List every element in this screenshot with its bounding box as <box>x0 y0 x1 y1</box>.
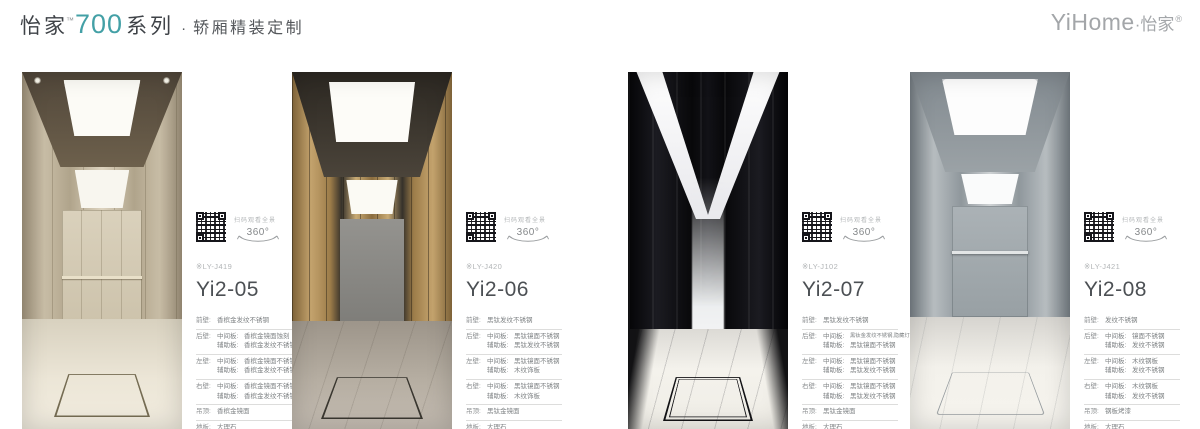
cabin-handrail <box>952 251 1029 254</box>
spec-label: 吊顶: <box>802 407 823 417</box>
spec-group: 左壁:中间板:黑钛镜面不锈钢辅助板:木纹饰板 <box>466 355 562 380</box>
spec-group: 地板:大理石 <box>802 421 898 429</box>
spec-sub-label: 辅助板: <box>1105 366 1132 376</box>
spec-value: 大理石 <box>823 423 843 429</box>
spec-group: 吊顶:黑钛金镜面 <box>466 405 562 421</box>
spec-value: 大理石 <box>1105 423 1125 429</box>
spec-list: 前壁:黑钛发纹不锈钢后壁:中间板:黑钛金发纹不锈钢,隐藏灯带辅助板:黑钛镜面不锈… <box>802 314 898 429</box>
spec-label: 前壁: <box>196 316 217 326</box>
spec-group: 后壁:中间板:镜面不锈钢辅助板:发纹不锈钢 <box>1084 330 1180 355</box>
spec-value: 黑钛镜面不锈钢 <box>850 341 896 351</box>
scan-block: 扫码观看全景 360° <box>504 212 552 245</box>
spec-value: 黑钛发纹不锈钢 <box>514 341 560 351</box>
spec-label: 地板: <box>802 423 823 429</box>
spec-row: 地板:大理石 <box>802 423 898 429</box>
catalog-page: 怡家™700系列 · 轿厢精装定制 YiHome ·怡家 ® <box>0 0 1200 429</box>
product-code: ※LY-J419 <box>196 262 292 271</box>
spec-value: 黑钛发纹不锈钢 <box>850 366 896 376</box>
spec-row: 后壁:中间板:镜面不锈钢 <box>1084 332 1180 342</box>
qr-finder-icon <box>802 234 810 242</box>
spec-label: 地板: <box>1084 423 1105 429</box>
qr-code-icon <box>802 212 832 242</box>
spec-row: 右壁:中间板:香槟金镜面不锈钢 <box>196 382 292 392</box>
spec-row: 右壁:中间板:黑钛镜面不锈钢 <box>802 382 898 392</box>
spec-value: 发纹不锈钢 <box>1132 366 1165 376</box>
spec-label <box>1084 366 1105 376</box>
spec-row: 辅助板:黑钛发纹不锈钢 <box>802 392 898 402</box>
spec-row: 左壁:中间板:木纹钢板 <box>1084 357 1180 367</box>
spec-row: 吊顶:黑钛金镜面 <box>802 407 898 417</box>
spec-group: 地板:大理石 <box>1084 421 1180 429</box>
spec-row: 前壁:发纹不锈钢 <box>1084 316 1180 326</box>
spec-sub-label: 辅助板: <box>487 341 514 351</box>
cabin-floor <box>22 319 182 429</box>
spec-value: 香槟金发纹不锈钢 <box>217 316 269 326</box>
product-code: ※LY-J102 <box>802 262 898 271</box>
product-model: Yi2-06 <box>466 278 562 302</box>
spec-row: 左壁:中间板:香槟金镜面不锈钢 <box>196 357 292 367</box>
spec-value: 黑钛发纹不锈钢 <box>823 316 869 326</box>
spec-sub-label: 中间板: <box>487 357 514 367</box>
spec-label <box>802 366 823 376</box>
page-title: 怡家™700系列 · 轿厢精装定制 <box>20 9 304 40</box>
qr-finder-icon <box>218 212 226 220</box>
rotate-360-badge: 360° <box>1122 227 1170 245</box>
spec-sub-label: 中间板: <box>217 357 244 367</box>
spec-group: 地板:大理石 <box>196 421 292 429</box>
spec-sub-label: 中间板: <box>823 332 850 342</box>
spec-sub-label: 辅助板: <box>823 341 850 351</box>
product-model: Yi2-05 <box>196 278 292 302</box>
spec-row: 吊顶:黑钛金镜面 <box>466 407 562 417</box>
ceiling-light-panel-rear <box>346 180 397 214</box>
spec-value: 发纹不锈钢 <box>1105 316 1138 326</box>
spec-sub-label: 辅助板: <box>823 392 850 402</box>
elevator-cabin-photo <box>628 72 788 429</box>
spec-group: 吊顶:香槟金镜面 <box>196 405 292 421</box>
spec-row: 前壁:黑钛发纹不锈钢 <box>802 316 898 326</box>
spec-label <box>802 392 823 402</box>
spec-sub-label: 中间板: <box>217 332 244 342</box>
ceiling-light-panel <box>327 82 417 142</box>
spec-sub-label: 中间板: <box>1105 332 1132 342</box>
registered-mark: ® <box>1175 14 1182 24</box>
spec-row: 地板:大理石 <box>196 423 292 429</box>
spec-value: 黑钛镜面不锈钢 <box>514 332 560 342</box>
qr-finder-icon <box>466 234 474 242</box>
spec-row: 地板:大理石 <box>1084 423 1180 429</box>
spec-row: 右壁:中间板:木纹钢板 <box>1084 382 1180 392</box>
spec-value: 镜面不锈钢 <box>1132 332 1165 342</box>
spec-group: 左壁:中间板:木纹钢板辅助板:发纹不锈钢 <box>1084 355 1180 380</box>
spec-label: 后壁: <box>1084 332 1105 342</box>
product-info-panel: 扫码观看全景 360° ※LY-J421 Yi2-08 前壁:发纹不锈钢后壁:中… <box>1084 72 1180 429</box>
series-name: 怡家 <box>20 10 68 40</box>
ceiling-light-panel-rear <box>961 174 1019 204</box>
spec-list: 前壁:香槟金发纹不锈钢后壁:中间板:香槟金镜面蚀刻辅助板:香槟金发纹不锈钢左壁:… <box>196 314 292 429</box>
trademark-mark: ™ <box>66 16 74 25</box>
spec-value: 黑钛发纹不锈钢 <box>850 392 896 402</box>
spec-group: 左壁:中间板:黑钛镜面不锈钢辅助板:黑钛发纹不锈钢 <box>802 355 898 380</box>
page-header: 怡家™700系列 · 轿厢精装定制 YiHome ·怡家 ® <box>0 0 1200 62</box>
spec-value: 发纹不锈钢 <box>1132 341 1165 351</box>
qr-finder-icon <box>488 212 496 220</box>
elevator-cabin-photo <box>910 72 1070 429</box>
brand-logo: YiHome ·怡家 ® <box>1051 9 1182 36</box>
scan-block: 扫码观看全景 360° <box>1122 212 1170 245</box>
spec-value: 香槟金发纹不锈钢 <box>244 341 296 351</box>
spec-label: 后壁: <box>802 332 823 342</box>
floor-inlay-inner-frame <box>669 379 747 417</box>
product-info-panel: 扫码观看全景 360° ※LY-J419 Yi2-05 前壁:香槟金发纹不锈钢后… <box>196 72 292 429</box>
spec-sub-label: 辅助板: <box>1105 392 1132 402</box>
spec-group: 后壁:中间板:黑钛金发纹不锈钢,隐藏灯带辅助板:黑钛镜面不锈钢 <box>802 330 898 355</box>
spec-group: 吊顶:黑钛金镜面 <box>802 405 898 421</box>
spec-value: 木纹钢板 <box>1132 382 1158 392</box>
spec-label <box>196 366 217 376</box>
spec-value: 大理石 <box>217 423 237 429</box>
product-code: ※LY-J420 <box>466 262 562 271</box>
spec-sub-label: 辅助板: <box>487 366 514 376</box>
spec-label <box>466 366 487 376</box>
spec-label: 右壁: <box>1084 382 1105 392</box>
rotate-360-label: 360° <box>853 227 876 238</box>
spec-group: 前壁:黑钛发纹不锈钢 <box>802 314 898 330</box>
spec-row: 辅助板:香槟金发纹不锈钢 <box>196 366 292 376</box>
spec-label: 地板: <box>196 423 217 429</box>
spec-value: 黑钛镜面不锈钢 <box>514 357 560 367</box>
spec-value: 香槟金镜面蚀刻 <box>244 332 290 342</box>
products-row: 扫码观看全景 360° ※LY-J419 Yi2-05 前壁:香槟金发纹不锈钢后… <box>22 72 1180 429</box>
spec-label <box>196 392 217 402</box>
product-section: 扫码观看全景 360° ※LY-J420 Yi2-06 前壁:黑钛发纹不锈钢后壁… <box>292 72 562 429</box>
scan-block: 扫码观看全景 360° <box>840 212 888 245</box>
spec-sub-label: 中间板: <box>217 382 244 392</box>
spec-label: 吊顶: <box>1084 407 1105 417</box>
spec-sub-label: 辅助板: <box>217 341 244 351</box>
spec-value: 黑钛发纹不锈钢 <box>487 316 533 326</box>
rotate-360-badge: 360° <box>504 227 552 245</box>
spec-sub-label: 辅助板: <box>217 366 244 376</box>
floor-inlay-frame <box>936 372 1045 415</box>
spec-row: 吊顶:钢板烤漆 <box>1084 407 1180 417</box>
spec-label: 后壁: <box>196 332 217 342</box>
qr-finder-icon <box>466 212 474 220</box>
brand-logo-en: YiHome <box>1051 9 1135 36</box>
spec-sub-label: 中间板: <box>1105 357 1132 367</box>
spec-row: 辅助板:发纹不锈钢 <box>1084 392 1180 402</box>
qr-finder-icon <box>824 212 832 220</box>
spec-label <box>466 392 487 402</box>
spec-group: 后壁:中间板:黑钛镜面不锈钢辅助板:黑钛发纹不锈钢 <box>466 330 562 355</box>
spec-label: 右壁: <box>466 382 487 392</box>
qr-code-icon <box>196 212 226 242</box>
cabin-handrail <box>692 177 724 339</box>
spec-row: 辅助板:香槟金发纹不锈钢 <box>196 341 292 351</box>
spec-group: 右壁:中间板:香槟金镜面不锈钢辅助板:香槟金发纹不锈钢 <box>196 380 292 405</box>
rotate-360-label: 360° <box>1135 227 1158 238</box>
spec-sub-label: 中间板: <box>487 382 514 392</box>
spec-group: 左壁:中间板:香槟金镜面不锈钢辅助板:香槟金发纹不锈钢 <box>196 355 292 380</box>
spec-label: 左壁: <box>802 357 823 367</box>
spec-row: 后壁:中间板:黑钛金发纹不锈钢,隐藏灯带 <box>802 332 898 342</box>
spec-row: 辅助板:木纹饰板 <box>466 392 562 402</box>
qr-finder-icon <box>1084 212 1092 220</box>
qr-finder-icon <box>1106 212 1114 220</box>
spec-value: 黑钛镜面不锈钢 <box>850 357 896 367</box>
spec-group: 吊顶:钢板烤漆 <box>1084 405 1180 421</box>
spec-value: 黑钛镜面不锈钢 <box>850 382 896 392</box>
qr-row: 扫码观看全景 360° <box>1084 212 1180 245</box>
spec-row: 地板:大理石 <box>466 423 562 429</box>
spec-label: 后壁: <box>466 332 487 342</box>
spec-group: 后壁:中间板:香槟金镜面蚀刻辅助板:香槟金发纹不锈钢 <box>196 330 292 355</box>
qr-code-icon <box>466 212 496 242</box>
spec-value: 香槟金发纹不锈钢 <box>244 366 296 376</box>
spec-value: 黑钛金镜面 <box>487 407 520 417</box>
spec-row: 左壁:中间板:黑钛镜面不锈钢 <box>802 357 898 367</box>
spec-row: 辅助板:黑钛镜面不锈钢 <box>802 341 898 351</box>
spec-sub-label: 中间板: <box>487 332 514 342</box>
spec-value: 香槟金镜面不锈钢 <box>244 382 296 392</box>
qr-finder-icon <box>196 234 204 242</box>
page-subtitle: 轿厢精装定制 <box>193 14 304 38</box>
spec-value: 发纹不锈钢 <box>1132 392 1165 402</box>
spec-value: 黑钛镜面不锈钢 <box>514 382 560 392</box>
spec-list: 前壁:发纹不锈钢后壁:中间板:镜面不锈钢辅助板:发纹不锈钢左壁:中间板:木纹钢板… <box>1084 314 1180 429</box>
spec-row: 辅助板:木纹饰板 <box>466 366 562 376</box>
series-number: 700 <box>75 9 123 40</box>
spec-group: 地板:大理石 <box>466 421 562 429</box>
spec-label: 前壁: <box>1084 316 1105 326</box>
spec-group: 右壁:中间板:黑钛镜面不锈钢辅助板:木纹饰板 <box>466 380 562 405</box>
spec-value: 钢板烤漆 <box>1105 407 1131 417</box>
spec-label: 前壁: <box>802 316 823 326</box>
cabin-back-wall <box>62 210 142 321</box>
spec-sub-label: 辅助板: <box>1105 341 1132 351</box>
scan-block: 扫码观看全景 360° <box>234 212 282 245</box>
product-section: 扫码观看全景 360° ※LY-J421 Yi2-08 前壁:发纹不锈钢后壁:中… <box>910 72 1180 429</box>
product-info-panel: 扫码观看全景 360° ※LY-J102 Yi2-07 前壁:黑钛发纹不锈钢后壁… <box>802 72 898 429</box>
rotate-360-badge: 360° <box>234 227 282 245</box>
spec-label: 前壁: <box>466 316 487 326</box>
product-section: 扫码观看全景 360° ※LY-J102 Yi2-07 前壁:黑钛发纹不锈钢后壁… <box>628 72 898 429</box>
spec-label <box>1084 341 1105 351</box>
spec-sub-label: 中间板: <box>1105 382 1132 392</box>
spec-row: 辅助板:黑钛发纹不锈钢 <box>466 341 562 351</box>
spec-label: 左壁: <box>196 357 217 367</box>
spec-label <box>1084 392 1105 402</box>
spec-sub-label: 辅助板: <box>487 392 514 402</box>
spec-value: 香槟金镜面 <box>217 407 250 417</box>
spec-group: 右壁:中间板:黑钛镜面不锈钢辅助板:黑钛发纹不锈钢 <box>802 380 898 405</box>
rotate-360-badge: 360° <box>840 227 888 245</box>
spec-group: 前壁:黑钛发纹不锈钢 <box>466 314 562 330</box>
title-separator-dot: · <box>181 20 186 37</box>
spec-value: 香槟金发纹不锈钢 <box>244 392 296 402</box>
rotate-360-label: 360° <box>517 227 540 238</box>
spec-label: 右壁: <box>802 382 823 392</box>
spec-sub-label: 中间板: <box>823 357 850 367</box>
floor-inlay-frame <box>321 377 423 419</box>
scan-hint-label: 扫码观看全景 <box>840 215 888 224</box>
scan-hint-label: 扫码观看全景 <box>1122 215 1170 224</box>
spec-label <box>466 341 487 351</box>
elevator-cabin-photo <box>292 72 452 429</box>
scan-hint-label: 扫码观看全景 <box>234 215 282 224</box>
floor-inlay-frame <box>54 374 150 417</box>
product-model: Yi2-07 <box>802 278 898 302</box>
spec-sub-label: 辅助板: <box>823 366 850 376</box>
qr-finder-icon <box>196 212 204 220</box>
spec-value: 木纹饰板 <box>514 392 540 402</box>
spec-row: 左壁:中间板:黑钛镜面不锈钢 <box>466 357 562 367</box>
spec-label <box>196 341 217 351</box>
rotate-360-label: 360° <box>247 227 270 238</box>
spec-label: 吊顶: <box>466 407 487 417</box>
spec-list: 前壁:黑钛发纹不锈钢后壁:中间板:黑钛镜面不锈钢辅助板:黑钛发纹不锈钢左壁:中间… <box>466 314 562 429</box>
scan-hint-label: 扫码观看全景 <box>504 215 552 224</box>
floor-inlay-frame <box>663 377 753 421</box>
spec-row: 辅助板:黑钛发纹不锈钢 <box>802 366 898 376</box>
ceiling-light-panel <box>64 80 141 136</box>
series-suffix: 系列 <box>126 10 174 40</box>
spec-value: 黑钛金发纹不锈钢,隐藏灯带 <box>850 332 915 342</box>
spec-label: 左壁: <box>466 357 487 367</box>
cabin-floor <box>628 329 788 429</box>
spec-row: 吊顶:香槟金镜面 <box>196 407 292 417</box>
cabin-back-wall <box>952 206 1029 317</box>
spec-value: 木纹钢板 <box>1132 357 1158 367</box>
spec-label: 吊顶: <box>196 407 217 417</box>
product-info-panel: 扫码观看全景 360° ※LY-J420 Yi2-06 前壁:黑钛发纹不锈钢后壁… <box>466 72 562 429</box>
spec-group: 右壁:中间板:木纹钢板辅助板:发纹不锈钢 <box>1084 380 1180 405</box>
cabin-handrail <box>62 276 142 279</box>
spec-row: 后壁:中间板:黑钛镜面不锈钢 <box>466 332 562 342</box>
spec-row: 辅助板:发纹不锈钢 <box>1084 341 1180 351</box>
spec-value: 木纹饰板 <box>514 366 540 376</box>
spec-group: 前壁:发纹不锈钢 <box>1084 314 1180 330</box>
qr-row: 扫码观看全景 360° <box>802 212 898 245</box>
qr-finder-icon <box>802 212 810 220</box>
spec-label: 地板: <box>466 423 487 429</box>
ceiling-light-panel-rear <box>75 170 129 208</box>
spec-label <box>802 341 823 351</box>
qr-row: 扫码观看全景 360° <box>196 212 292 245</box>
ceiling-light-panel <box>942 79 1038 135</box>
cabin-floor <box>292 321 452 429</box>
spec-row: 后壁:中间板:香槟金镜面蚀刻 <box>196 332 292 342</box>
spec-sub-label: 中间板: <box>823 382 850 392</box>
brand-logo-cn: ·怡家 <box>1135 10 1175 35</box>
cabin-back-wall <box>340 219 404 325</box>
spec-group: 前壁:香槟金发纹不锈钢 <box>196 314 292 330</box>
spec-value: 黑钛金镜面 <box>823 407 856 417</box>
product-code: ※LY-J421 <box>1084 262 1180 271</box>
spec-sub-label: 辅助板: <box>217 392 244 402</box>
spec-row: 辅助板:香槟金发纹不锈钢 <box>196 392 292 402</box>
spec-value: 香槟金镜面不锈钢 <box>244 357 296 367</box>
spec-row: 右壁:中间板:黑钛镜面不锈钢 <box>466 382 562 392</box>
spec-row: 辅助板:发纹不锈钢 <box>1084 366 1180 376</box>
qr-code-icon <box>1084 212 1114 242</box>
qr-row: 扫码观看全景 360° <box>466 212 562 245</box>
spec-row: 前壁:香槟金发纹不锈钢 <box>196 316 292 326</box>
spec-value: 大理石 <box>487 423 507 429</box>
cabin-floor <box>910 317 1070 429</box>
spec-label: 右壁: <box>196 382 217 392</box>
product-model: Yi2-08 <box>1084 278 1180 302</box>
spec-label: 左壁: <box>1084 357 1105 367</box>
spec-row: 前壁:黑钛发纹不锈钢 <box>466 316 562 326</box>
product-section: 扫码观看全景 360° ※LY-J419 Yi2-05 前壁:香槟金发纹不锈钢后… <box>22 72 292 429</box>
elevator-cabin-photo <box>22 72 182 429</box>
qr-finder-icon <box>1084 234 1092 242</box>
